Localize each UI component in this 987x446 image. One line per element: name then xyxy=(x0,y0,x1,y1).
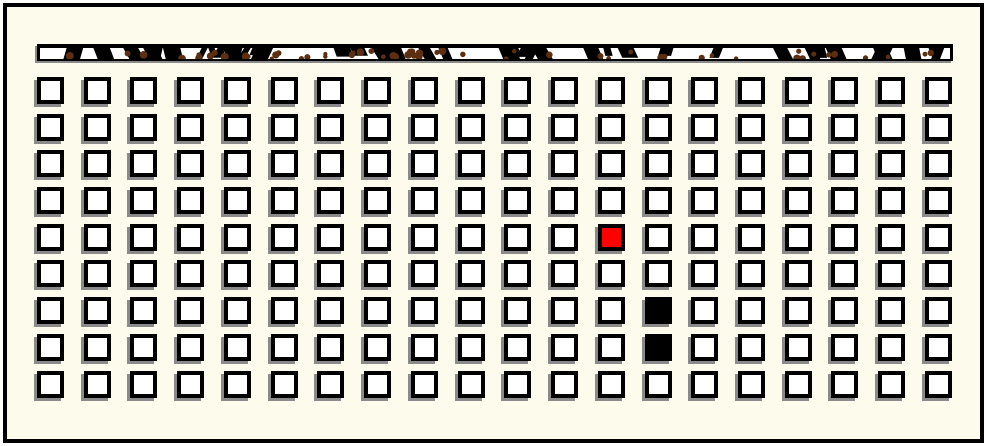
grid-cell[interactable] xyxy=(271,114,298,141)
grid-cell[interactable] xyxy=(925,114,952,141)
grid-cell[interactable] xyxy=(458,77,485,104)
grid-cell[interactable] xyxy=(878,77,905,104)
grid-cell[interactable] xyxy=(224,150,251,177)
grid-cell[interactable] xyxy=(271,371,298,398)
grid-cell[interactable] xyxy=(598,334,625,361)
grid-cell[interactable] xyxy=(691,224,718,251)
grid-cell[interactable] xyxy=(177,260,204,287)
grid-cell[interactable] xyxy=(364,260,391,287)
grid-cell[interactable] xyxy=(224,260,251,287)
grid-cell[interactable] xyxy=(831,371,858,398)
grid-cell[interactable] xyxy=(317,114,344,141)
grid-cell[interactable] xyxy=(224,334,251,361)
grid-cell[interactable] xyxy=(738,224,765,251)
grid-cell[interactable] xyxy=(177,114,204,141)
grid-cell[interactable] xyxy=(364,334,391,361)
grid-cell[interactable] xyxy=(831,77,858,104)
grid-cell[interactable] xyxy=(84,187,111,214)
grid-cell[interactable] xyxy=(458,334,485,361)
grid-cell[interactable] xyxy=(177,187,204,214)
grid-cell[interactable] xyxy=(551,77,578,104)
grid-cell[interactable] xyxy=(271,297,298,324)
grid-cell[interactable] xyxy=(411,150,438,177)
grid-cell[interactable] xyxy=(37,150,64,177)
grid-cell[interactable] xyxy=(84,297,111,324)
grid-cell[interactable] xyxy=(364,297,391,324)
grid-cell[interactable] xyxy=(551,114,578,141)
grid-cell[interactable] xyxy=(691,334,718,361)
grid-cell[interactable] xyxy=(458,224,485,251)
grid-cell[interactable] xyxy=(691,297,718,324)
grid-cell[interactable] xyxy=(925,77,952,104)
grid-cell[interactable] xyxy=(551,150,578,177)
texture-pattern xyxy=(40,48,950,59)
grid-cell[interactable] xyxy=(925,334,952,361)
grid-cell[interactable] xyxy=(691,114,718,141)
grid-cell[interactable] xyxy=(364,371,391,398)
grid-cell[interactable] xyxy=(84,77,111,104)
grid-cell[interactable] xyxy=(504,334,531,361)
grid-cell[interactable] xyxy=(785,297,812,324)
red-cell[interactable] xyxy=(598,224,625,251)
grid-cell[interactable] xyxy=(130,77,157,104)
grid-cell[interactable] xyxy=(925,371,952,398)
grid-cell[interactable] xyxy=(504,77,531,104)
grid-cell[interactable] xyxy=(504,224,531,251)
grid-cell[interactable] xyxy=(37,77,64,104)
grid-cell[interactable] xyxy=(271,260,298,287)
grid-cell[interactable] xyxy=(738,260,765,287)
grid-cell[interactable] xyxy=(831,187,858,214)
grid-cell[interactable] xyxy=(598,114,625,141)
grid-cell[interactable] xyxy=(364,224,391,251)
grid-cell[interactable] xyxy=(785,224,812,251)
grid-cell[interactable] xyxy=(317,77,344,104)
grid-cell[interactable] xyxy=(411,77,438,104)
cell-grid xyxy=(37,77,952,398)
grid-cell[interactable] xyxy=(878,297,905,324)
grid-cell[interactable] xyxy=(598,371,625,398)
grid-cell[interactable] xyxy=(925,260,952,287)
grid-cell[interactable] xyxy=(878,150,905,177)
grid-cell[interactable] xyxy=(37,114,64,141)
grid-cell[interactable] xyxy=(271,334,298,361)
grid-cell[interactable] xyxy=(271,150,298,177)
grid-cell[interactable] xyxy=(691,371,718,398)
grid-cell[interactable] xyxy=(504,297,531,324)
grid-cell[interactable] xyxy=(785,150,812,177)
grid-cell[interactable] xyxy=(831,150,858,177)
grid-cell[interactable] xyxy=(831,260,858,287)
window xyxy=(0,0,987,446)
grid-cell[interactable] xyxy=(738,187,765,214)
grid-cell[interactable] xyxy=(130,297,157,324)
grid-cell[interactable] xyxy=(317,334,344,361)
grid-cell[interactable] xyxy=(738,77,765,104)
grid-cell[interactable] xyxy=(785,187,812,214)
grid-cell[interactable] xyxy=(317,150,344,177)
grid-cell[interactable] xyxy=(878,260,905,287)
grid-cell[interactable] xyxy=(551,260,578,287)
grid-cell[interactable] xyxy=(691,77,718,104)
grid-cell[interactable] xyxy=(785,371,812,398)
grid-cell[interactable] xyxy=(411,371,438,398)
grid-cell[interactable] xyxy=(130,114,157,141)
grid-cell[interactable] xyxy=(458,297,485,324)
grid-cell[interactable] xyxy=(645,371,672,398)
grid-cell[interactable] xyxy=(458,150,485,177)
grid-cell[interactable] xyxy=(84,224,111,251)
grid-cell[interactable] xyxy=(458,260,485,287)
grid-cell[interactable] xyxy=(645,114,672,141)
grid-cell[interactable] xyxy=(738,334,765,361)
grid-cell[interactable] xyxy=(645,260,672,287)
grid-cell[interactable] xyxy=(84,334,111,361)
grid-cell[interactable] xyxy=(878,371,905,398)
grid-cell[interactable] xyxy=(364,187,391,214)
grid-cell[interactable] xyxy=(37,224,64,251)
grid-cell[interactable] xyxy=(598,187,625,214)
grid-cell[interactable] xyxy=(691,187,718,214)
grid-cell[interactable] xyxy=(37,297,64,324)
grid-cell[interactable] xyxy=(738,297,765,324)
grid-cell[interactable] xyxy=(785,77,812,104)
grid-cell[interactable] xyxy=(504,114,531,141)
grid-cell[interactable] xyxy=(504,260,531,287)
grid-cell[interactable] xyxy=(130,224,157,251)
grid-cell[interactable] xyxy=(317,187,344,214)
grid-cell[interactable] xyxy=(878,114,905,141)
grid-cell[interactable] xyxy=(598,260,625,287)
grid-cell[interactable] xyxy=(37,260,64,287)
grid-cell[interactable] xyxy=(458,114,485,141)
grid-cell[interactable] xyxy=(130,187,157,214)
grid-cell[interactable] xyxy=(785,334,812,361)
grid-cell[interactable] xyxy=(364,150,391,177)
grid-cell[interactable] xyxy=(37,187,64,214)
grid-cell[interactable] xyxy=(317,371,344,398)
grid-cell[interactable] xyxy=(177,224,204,251)
grid-cell[interactable] xyxy=(411,114,438,141)
grid-cell[interactable] xyxy=(317,224,344,251)
grid-cell[interactable] xyxy=(224,114,251,141)
grid-cell[interactable] xyxy=(831,297,858,324)
grid-cell[interactable] xyxy=(364,77,391,104)
grid-cell[interactable] xyxy=(411,334,438,361)
grid-cell[interactable] xyxy=(84,150,111,177)
grid-cell[interactable] xyxy=(925,150,952,177)
grid-cell[interactable] xyxy=(878,224,905,251)
grid-cell[interactable] xyxy=(925,187,952,214)
grid-cell[interactable] xyxy=(504,371,531,398)
grid-cell[interactable] xyxy=(177,334,204,361)
grid-cell[interactable] xyxy=(738,114,765,141)
grid-cell[interactable] xyxy=(130,150,157,177)
grid-cell[interactable] xyxy=(831,224,858,251)
grid-cell[interactable] xyxy=(691,260,718,287)
grid-cell[interactable] xyxy=(130,371,157,398)
grid-cell[interactable] xyxy=(551,334,578,361)
grid-cell[interactable] xyxy=(738,150,765,177)
grid-cell[interactable] xyxy=(224,297,251,324)
grid-cell[interactable] xyxy=(458,371,485,398)
grid-cell[interactable] xyxy=(598,77,625,104)
grid-cell[interactable] xyxy=(84,260,111,287)
grid-cell[interactable] xyxy=(878,187,905,214)
grid-cell[interactable] xyxy=(738,371,765,398)
grid-cell[interactable] xyxy=(831,114,858,141)
grid-cell[interactable] xyxy=(831,334,858,361)
grid-cell[interactable] xyxy=(551,224,578,251)
black-cell[interactable] xyxy=(645,297,672,324)
grid-cell[interactable] xyxy=(411,297,438,324)
grid-cell[interactable] xyxy=(37,371,64,398)
grid-cell[interactable] xyxy=(785,260,812,287)
grid-cell[interactable] xyxy=(177,77,204,104)
grid-cell[interactable] xyxy=(224,224,251,251)
grid-cell[interactable] xyxy=(130,334,157,361)
grid-cell[interactable] xyxy=(551,187,578,214)
grid-cell[interactable] xyxy=(598,297,625,324)
textured-top-bar xyxy=(37,44,953,61)
grid-cell[interactable] xyxy=(177,150,204,177)
grid-cell[interactable] xyxy=(271,77,298,104)
grid-cell[interactable] xyxy=(458,187,485,214)
grid-cell[interactable] xyxy=(84,114,111,141)
grid-cell[interactable] xyxy=(411,224,438,251)
grid-cell[interactable] xyxy=(177,297,204,324)
grid-cell[interactable] xyxy=(645,77,672,104)
grid-cell[interactable] xyxy=(785,114,812,141)
grid-cell[interactable] xyxy=(925,297,952,324)
grid-cell[interactable] xyxy=(598,150,625,177)
grid-cell[interactable] xyxy=(645,150,672,177)
grid-cell[interactable] xyxy=(878,334,905,361)
game-board-frame xyxy=(3,3,984,443)
grid-cell[interactable] xyxy=(645,224,672,251)
grid-cell[interactable] xyxy=(645,187,672,214)
grid-cell[interactable] xyxy=(925,224,952,251)
grid-cell[interactable] xyxy=(551,297,578,324)
grid-cell[interactable] xyxy=(504,187,531,214)
grid-cell[interactable] xyxy=(271,224,298,251)
grid-cell[interactable] xyxy=(551,371,578,398)
grid-cell[interactable] xyxy=(271,187,298,214)
grid-cell[interactable] xyxy=(364,114,391,141)
grid-cell[interactable] xyxy=(504,150,531,177)
grid-cell[interactable] xyxy=(224,187,251,214)
grid-cell[interactable] xyxy=(691,150,718,177)
grid-cell[interactable] xyxy=(224,77,251,104)
black-cell[interactable] xyxy=(645,334,672,361)
grid-cell[interactable] xyxy=(411,260,438,287)
grid-cell[interactable] xyxy=(37,334,64,361)
grid-cell[interactable] xyxy=(411,187,438,214)
grid-cell[interactable] xyxy=(317,260,344,287)
grid-cell[interactable] xyxy=(177,371,204,398)
grid-cell[interactable] xyxy=(84,371,111,398)
grid-cell[interactable] xyxy=(130,260,157,287)
grid-cell[interactable] xyxy=(224,371,251,398)
grid-cell[interactable] xyxy=(317,297,344,324)
